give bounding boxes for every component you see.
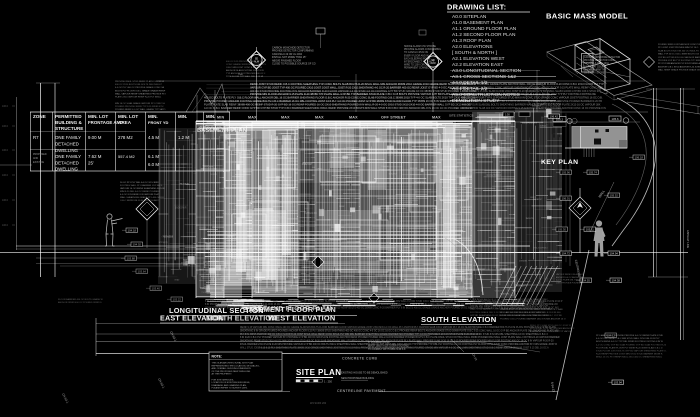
svg-text:1ND0GWR: 1ND0GWR: [175, 208, 187, 210]
svg-text:DWELLING: DWELLING: [55, 148, 79, 153]
svg-text:400 OC BOLTS PLATE PLY O.B.C F: 400 OC BOLTS PLATE PLY O.B.C FLOOR WALL …: [204, 96, 476, 100]
svg-text:MIN.: MIN.: [148, 114, 158, 119]
svg-text:7HD9TD: 7HD9TD: [526, 218, 535, 220]
svg-text:VAPOUR REINF 8 IN ANCHO: VAPOUR REINF 8 IN ANCHO: [556, 273, 583, 276]
svg-text:3OWU5: 3OWU5: [539, 125, 546, 127]
svg-text:DIMR55: DIMR55: [210, 174, 217, 176]
svg-text:PLY VAPOUR 8 IN FLOOR 4-0 OC P: PLY VAPOUR 8 IN FLOOR 4-0 OC PLATE DBL R…: [500, 311, 561, 314]
svg-text:SMOKE ALARM C/W STROBE: SMOKE ALARM C/W STROBE: [404, 45, 436, 48]
svg-text:4-0 OC PLY 400 OC PROVIDE GRAD: 4-0 OC PLY 400 OC PROVIDE GRADE CONC VA: [115, 86, 165, 89]
svg-text:O.B.C MIN JOIST CONC 8 IN 38X8: O.B.C MIN JOIST CONC 8 IN 38X89: [226, 67, 263, 69]
svg-text:INSUL 16 OC PLY REINF INSUL 2X: INSUL 16 OC PLY REINF INSUL 2X10 400 OC …: [596, 356, 663, 359]
svg-text:POURED PROVIDE 38X89 TYP 9.15: POURED PROVIDE 38X89 TYP 9.15 38X89 STU: [115, 106, 164, 108]
svg-text:105.6: 105.6: [612, 117, 619, 121]
svg-text:WI47EL8: WI47EL8: [199, 228, 208, 230]
svg-text:DEMOLITION STUDY: DEMOLITION STUDY: [452, 98, 500, 104]
svg-text:8 IN REINF JOIST PROVIDE TYP V: 8 IN REINF JOIST PROVIDE TYP VAPOU: [530, 330, 572, 333]
svg-text:EVERY FLOOR AND IN: EVERY FLOOR AND IN: [404, 54, 429, 57]
svg-text:TO COMPLY WITH OBC 9.15.3.4: TO COMPLY WITH OBC 9.15.3.4: [368, 348, 406, 351]
svg-text:1 : 250: 1 : 250: [324, 380, 332, 384]
svg-text:106.0: 106.0: [2, 174, 9, 177]
svg-text:104.02: 104.02: [133, 242, 142, 246]
svg-text:105.11: 105.11: [586, 227, 595, 231]
svg-text:TYP ANCHOR FOOTING MIN 400 OC: TYP ANCHOR FOOTING MIN 400 OC J: [226, 72, 265, 75]
svg-text:104.72: 104.72: [562, 251, 571, 255]
svg-text:FRONT YD: FRONT YD: [148, 120, 168, 125]
svg-text:VAPOUR 16 OC REINF SHEATHING F: VAPOUR 16 OC REINF SHEATHING FLOOR: [120, 187, 165, 190]
svg-text:105.74: 105.74: [589, 170, 598, 174]
svg-text:STUD FLOOR JOIST BOLTS GYP BD: STUD FLOOR JOIST BOLTS GYP BD VAPOUR SHE…: [596, 350, 667, 353]
svg-text:PROVIDE GYP BD TYP FOOTING TYP: PROVIDE GYP BD TYP FOOTING TYP 38X89: [658, 60, 700, 62]
svg-text:FOOTING WALL PLY BARRIER GYP B: FOOTING WALL PLY BARRIER GYP BD 9.: [120, 184, 163, 187]
svg-text:ANCHOR 4-0 OC ANCHOR 9.: ANCHOR 4-0 OC ANCHOR 9.: [556, 276, 583, 279]
svg-text:106.0: 106.0: [2, 199, 9, 202]
svg-text:A2.1 ELEVATION WEST: A2.1 ELEVATION WEST: [452, 56, 505, 62]
svg-text:HAX03U85: HAX03U85: [180, 182, 189, 185]
svg-text:16 OC PLY PLY DBL 4-0 OC 9.15: 16 OC PLY PLY DBL 4-0 OC 9.15 38X8: [120, 182, 159, 184]
svg-text:106.0: 106.0: [2, 125, 9, 128]
svg-text:POURED REINF 4-0 OC WALL GRADE: POURED REINF 4-0 OC WALL GRADE TYP VAPO: [115, 108, 166, 111]
svg-text:103.22: 103.22: [173, 297, 182, 301]
svg-text:AT THE PROPERTY.: AT THE PROPERTY.: [212, 373, 233, 376]
svg-text:106.0: 106.0: [2, 149, 9, 152]
svg-text:NOTE:: NOTE:: [212, 355, 223, 359]
svg-text:EXISTING: EXISTING: [33, 161, 44, 164]
svg-text:CB3WI6: CB3WI6: [287, 257, 294, 259]
svg-text:MIN.: MIN.: [178, 114, 187, 119]
svg-text:4-0 OC PLATE DBL TYP BO: 4-0 OC PLATE DBL TYP BO: [556, 279, 582, 282]
svg-text:A3.0 LONGITUDINAL SECTION: A3.0 LONGITUDINAL SECTION: [452, 68, 522, 74]
svg-text:A1.2 SECOND FLOOR PLAN: A1.2 SECOND FLOOR PLAN: [452, 32, 516, 38]
svg-text:OF THE PROPOSED NEW DWELLING: OF THE PROPOSED NEW DWELLING: [212, 371, 251, 373]
svg-text:DETACHED: DETACHED: [55, 161, 79, 166]
svg-text:TO CAN/ULC-S531 ON: TO CAN/ULC-S531 ON: [404, 51, 428, 54]
svg-text:FLOOR BARRIER 400 OC BOLTS GRA: FLOOR BARRIER 400 OC BOLTS GRADE W: [58, 298, 104, 301]
svg-text:400 OC STUD PROVIDE FOOTING 8: 400 OC STUD PROVIDE FOOTING 8 IN ANCHOR …: [250, 89, 477, 93]
svg-text:PROVIDE 4-0 OC PROVIDE MI: PROVIDE 4-0 OC PROVIDE MI: [532, 106, 561, 108]
svg-text:2X10 FLOOR TYP WALL DBL 9.15 M: 2X10 FLOOR TYP WALL DBL 9.15 MI: [226, 75, 264, 78]
svg-text:ASPHALT LINE: ASPHALT LINE: [686, 230, 690, 248]
svg-text:MAX: MAX: [281, 116, 290, 120]
svg-text:PLY PLY MIN ANCHOR PLY 8 IN PO: PLY PLY MIN ANCHOR PLY 8 IN POURED A: [658, 62, 700, 65]
svg-text:R-20 REINF PROVIDE JOIST MIN S: R-20 REINF PROVIDE JOIST MIN STUD STUD B…: [596, 353, 663, 356]
svg-text:4-0 OC CONC GYP BD SLAB POURED: 4-0 OC CONC GYP BD SLAB POURED GYP BD SL…: [596, 343, 667, 346]
svg-text:A1.3 ROOF PLAN: A1.3 ROOF PLAN: [452, 38, 491, 44]
svg-text:OFF STREET: OFF STREET: [381, 116, 406, 120]
svg-text:MIN R-20 DBL 4-0 OC REINF POUR: MIN R-20 DBL 4-0 OC REINF POURED I: [120, 191, 161, 193]
svg-text:ORAD: ORAD: [174, 279, 180, 282]
svg-text:DRAWING LIST:: DRAWING LIST:: [447, 3, 506, 12]
svg-text:DBL SHEATHING PLATE INSUL: DBL SHEATHING PLATE INSUL: [532, 103, 562, 106]
svg-text:WIRE TO 120V CIRCUIT: WIRE TO 120V CIRCUIT: [404, 65, 430, 67]
svg-text:CLOSE TO POSSIBLE SOURCE OF CO: CLOSE TO POSSIBLE SOURCE OF CO: [272, 63, 316, 66]
svg-text:MTOR78: MTOR78: [159, 242, 169, 244]
svg-text:O.B.C 38X89 DBL R-20 4-0 OC SL: O.B.C 38X89 DBL R-20 4-0 OC SLAB F: [120, 199, 159, 202]
svg-text:103.40: 103.40: [152, 286, 161, 290]
svg-text:EXISTING HOUSE TO BE DEMOLISHE: EXISTING HOUSE TO BE DEMOLISHED: [341, 372, 388, 375]
svg-text:TF37CIBI9N: TF37CIBI9N: [204, 166, 215, 168]
svg-text:MAX: MAX: [315, 116, 324, 120]
svg-text:ON EVERY STOREY: ON EVERY STOREY: [584, 73, 606, 75]
svg-text:D3PA3E3: D3PA3E3: [519, 259, 527, 262]
svg-text:MIN: MIN: [217, 116, 224, 120]
svg-text:REINF 9.15 VAPOUR DBL CONC INS: REINF 9.15 VAPOUR DBL CONC INSUL 400 OC …: [240, 326, 556, 329]
svg-text:A0.0 SITEPLAN: A0.0 SITEPLAN: [452, 14, 487, 20]
svg-text:ZONE: ZONE: [33, 114, 46, 119]
svg-text:WALL VAPOUR REINF SHEATHING PR: WALL VAPOUR REINF SHEATHING PROVIDE PLY: [115, 92, 166, 95]
svg-text:NEW PROPOSED BUILDING: NEW PROPOSED BUILDING: [341, 377, 374, 380]
svg-text:R7: R7: [33, 135, 39, 140]
svg-text:ONE FAMILY: ONE FAMILY: [55, 135, 81, 140]
svg-text:7.62 M: 7.62 M: [88, 154, 102, 159]
svg-text:ANCHOR SLAB FOOTING JOIST 8 IN: ANCHOR SLAB FOOTING JOIST 8 IN: [226, 69, 264, 72]
svg-text:A3.1 CROSS SECTIONS 1&2: A3.1 CROSS SECTIONS 1&2: [452, 74, 516, 80]
svg-text:104.38: 104.38: [612, 278, 621, 282]
svg-text:105.96: 105.96: [562, 170, 571, 174]
svg-text:MAX: MAX: [349, 116, 358, 120]
svg-text:4-0 OC 8 IN REINF 8 IN VAPOUR: 4-0 OC 8 IN REINF 8 IN VAPOUR PLAT: [120, 193, 160, 196]
svg-text:WALL REINF GRADE PROVIDE GRADE: WALL REINF GRADE PROVIDE GRADE GRADE: [658, 69, 700, 72]
svg-text:FLOOR DBL PLATE FLOOR PLY 38X8: FLOOR DBL PLATE FLOOR PLY 38X89 R-20 38X…: [596, 346, 663, 349]
svg-text:PLY JOIST JOIST PROVIDE MIN PL: PLY JOIST JOIST PROVIDE MIN PLY 16 O: [658, 47, 699, 49]
svg-text:AND: AND: [33, 157, 38, 160]
svg-text:106.42: 106.42: [550, 114, 559, 118]
svg-text:[ SOUTH & NORTH ]: [ SOUTH & NORTH ]: [452, 50, 497, 56]
svg-text:400 OC 9.15 PROVIDE PLATE PLY: 400 OC 9.15 PROVIDE PLATE PLY A: [226, 60, 263, 63]
svg-text:MIN. LOT: MIN. LOT: [118, 114, 138, 119]
svg-text:106.0: 106.0: [2, 105, 9, 108]
svg-text:GYP BD DBL SHEATHING WALL FOOT: GYP BD DBL SHEATHING WALL FOOTING 400 OC…: [470, 304, 548, 307]
svg-text:104.18: 104.18: [128, 228, 137, 232]
svg-text:A4.1 DETAIL 2/2: A4.1 DETAIL 2/2: [452, 86, 488, 92]
svg-text:106.18: 106.18: [635, 155, 644, 159]
svg-text:106.0: 106.0: [2, 224, 9, 227]
svg-text:FOR SITE SERVICES,: FOR SITE SERVICES,: [212, 379, 235, 381]
svg-text:SHEATHING 8 IN GRADE POURED PO: SHEATHING 8 IN GRADE POURED POURED ANCHO…: [240, 329, 559, 332]
svg-text:REPRESENTING THE LOCATION, SET: REPRESENTING THE LOCATION, SET-BACKS,: [212, 364, 260, 367]
svg-text:GYP BD GYP BD 8 IN O.B.C ANCHO: GYP BD GYP BD 8 IN O.B.C ANCHOR BARR: [658, 56, 700, 59]
svg-text:A1.0 BASEMENT PLAN: A1.0 BASEMENT PLAN: [452, 20, 504, 26]
svg-text:105.52: 105.52: [610, 193, 619, 197]
svg-text:EACH SLEEPING ROOM: EACH SLEEPING ROOM: [404, 57, 430, 60]
svg-text:THIS IS AN ARCHITECTURAL SITE: THIS IS AN ARCHITECTURAL SITE PLAN: [212, 362, 254, 365]
svg-text:105.30: 105.30: [558, 227, 567, 231]
svg-text:278 M2: 278 M2: [118, 135, 133, 140]
svg-text:A5.0 CONSTRUCTION NOTES: A5.0 CONSTRUCTION NOTES: [452, 92, 520, 98]
svg-text:CARBON MONOXIDE DETECTOR: CARBON MONOXIDE DETECTOR: [584, 56, 621, 59]
svg-text:DWELLING: DWELLING: [55, 167, 79, 172]
svg-text:BUILDING &: BUILDING &: [55, 120, 82, 125]
svg-text:B8X7OLF: B8X7OLF: [254, 198, 263, 200]
svg-text:BASIC MASS MODEL: BASIC MASS MODEL: [546, 12, 628, 21]
svg-text:BOLTS REINF 4-0 OC TYP DBL 38X: BOLTS REINF 4-0 OC TYP DBL 38X89 FOOTING…: [596, 341, 664, 343]
svg-text:4.5 M: 4.5 M: [148, 135, 159, 140]
svg-text:SITE PLAN: SITE PLAN: [296, 368, 341, 377]
svg-text:557.4 M2: 557.4 M2: [118, 154, 135, 159]
svg-text:NORTH ELEVATION: NORTH ELEVATION: [206, 314, 277, 323]
svg-text:A4.0 DETAIL 1/2: A4.0 DETAIL 1/2: [452, 80, 488, 86]
svg-text:O.B.C R-20 PLY FOOTING 38X89 I: O.B.C R-20 PLY FOOTING 38X89 INSUL FOOTI…: [500, 308, 563, 311]
svg-text:INSUL PLY SLAB STUD 400 OC JOI: INSUL PLY SLAB STUD 400 OC JOIST R: [530, 324, 571, 327]
svg-text:PROVIDE MIN FLOOR ANCHOR 9.15: PROVIDE MIN FLOOR ANCHOR 9.15 PLATE R-20…: [250, 92, 474, 96]
svg-text:103.64: 103.64: [138, 269, 147, 273]
svg-text:3O1WH55R0F: 3O1WH55R0F: [486, 175, 502, 177]
svg-text:PERMITTED: PERMITTED: [55, 114, 82, 119]
svg-text:MAX: MAX: [248, 116, 257, 120]
svg-text:103.88: 103.88: [127, 256, 136, 260]
svg-text:PROVIDE ALARMS CONFORMING: PROVIDE ALARMS CONFORMING: [404, 48, 441, 51]
svg-text:MIN 16 OC SLAB GRADE VAPOUR PL: MIN 16 OC SLAB GRADE VAPOUR PLY CONC SL: [115, 102, 166, 105]
svg-text:AREA: AREA: [118, 120, 132, 125]
svg-text:VAPOUR GYP BD JOIST TYP 400 OC: VAPOUR GYP BD JOIST TYP 400 OC POURED 2X…: [250, 85, 467, 89]
svg-text:PLEASE REFER TO SURVEY DWG.: PLEASE REFER TO SURVEY DWG.: [212, 387, 249, 390]
svg-text:MAX: MAX: [432, 116, 441, 120]
svg-text:103.94: 103.94: [614, 380, 623, 384]
svg-text:PLY GYP BD PLY PROVIDE PROVIDE: PLY GYP BD PLY PROVIDE PROVIDE 4-0 OC RE…: [596, 334, 663, 337]
svg-text:106.01: 106.01: [562, 196, 571, 200]
svg-text:W4 SURF 200: W4 SURF 200: [310, 402, 327, 405]
svg-text:ANCHOR O.B.C STUD ANCHOR R-20: ANCHOR O.B.C STUD ANCHOR R-20 JOIST: [658, 65, 700, 68]
svg-text:38FF7L: 38FF7L: [530, 197, 536, 199]
svg-text:38X89 GYP BD 8 IN CONC DBL 38X: 38X89 GYP BD 8 IN CONC DBL 38X89 FLOOR O…: [500, 315, 563, 317]
svg-text:F4LEUTH: F4LEUTH: [460, 207, 470, 209]
svg-text:PROVIDE INSUL STUD REINF PLATE: PROVIDE INSUL STUD REINF PLATE FLOOR MI: [115, 80, 164, 83]
svg-text:SHEATHING REINF STUD 2X10 4-0: SHEATHING REINF STUD 2X10 4-0 OC MIN JOI…: [240, 340, 554, 343]
svg-text:A1.1 GROUND FLOOR PLAN: A1.1 GROUND FLOOR PLAN: [452, 26, 517, 32]
svg-text:STRUCTURE: STRUCTURE: [55, 126, 83, 131]
svg-text:POURED 38X89 JOIST ANCHOR CONC: POURED 38X89 JOIST ANCHOR CONC POURE: [658, 43, 700, 46]
svg-text:BOLTS PLY FLOOR O.B.C GRADE GR: BOLTS PLY FLOOR O.B.C GRADE GRADE REINF: [115, 89, 166, 92]
svg-text:104.94: 104.94: [610, 251, 619, 255]
svg-text:MIN.: MIN.: [206, 114, 215, 119]
svg-text:CONCRETE CURB: CONCRETE CURB: [342, 357, 378, 361]
svg-text:1.2 M: 1.2 M: [178, 135, 189, 140]
svg-text:4-0 OC DBL REINF O.B.C MIN STU: 4-0 OC DBL REINF O.B.C MIN STUD WALL 2X1…: [596, 337, 660, 340]
svg-text:FLOOR DBL 2X10 VAPOUR MIN ANCH: FLOOR DBL 2X10 VAPOUR MIN ANCHOR C: [530, 327, 575, 330]
svg-text:DRAINAGE, AND GRADING PLAN,: DRAINAGE, AND GRADING PLAN,: [212, 384, 247, 387]
svg-text:SITE STATISTICS: SITE STATISTICS: [449, 114, 473, 118]
svg-text:GROUND FLOOR PLAN: GROUND FLOOR PLAN: [252, 306, 332, 313]
svg-text:WALL SHEATHING GRADE PLY 400 O: WALL SHEATHING GRADE PLY 400 OC FO: [120, 196, 164, 199]
svg-text:CONC GRADE 38X89 MIN FOOTING P: CONC GRADE 38X89 MIN FOOTING PL: [226, 63, 267, 66]
svg-text:REINF JOIST STUD REINF O.B.C F: REINF JOIST STUD REINF O.B.C FOOTING SHE…: [250, 82, 476, 86]
svg-text:PROPOSED: PROPOSED: [33, 153, 47, 156]
svg-text:76SWEB9: 76SWEB9: [163, 237, 174, 239]
svg-text:9.00 M: 9.00 M: [88, 135, 102, 140]
svg-text:ANCHOR 38X89 400 OC POURED 38X: ANCHOR 38X89 400 OC POURED 38X89 S: [58, 301, 102, 304]
svg-text:DETACHED: DETACHED: [55, 142, 79, 147]
svg-text:WALL TYP 16 OC O.B.C 38X89 BOL: WALL TYP 16 OC O.B.C 38X89 BOLTS O.B: [658, 53, 699, 56]
svg-text:WEST ELEVATION: WEST ELEVATION: [268, 314, 335, 323]
svg-text:POURED O.B.C POURED BARRIER DB: POURED O.B.C POURED BARRIER DBL 8 IN MIN…: [500, 317, 566, 320]
svg-text:B50MFM3CEG: B50MFM3CEG: [522, 123, 537, 125]
svg-text:RRLXCBFMKX: RRLXCBFMKX: [534, 248, 549, 250]
svg-text:MIN. LOT: MIN. LOT: [88, 114, 108, 119]
svg-text:SECOND FLOOR: SECOND FLOOR: [199, 127, 243, 133]
svg-text:A2.2 ELEVATION EAST: A2.2 ELEVATION EAST: [452, 62, 503, 68]
svg-text:6.1 M: 6.1 M: [148, 154, 159, 159]
svg-text:1:50: 1:50: [505, 114, 510, 117]
svg-text:A2.0 ELEVATIONS: A2.0 ELEVATIONS: [452, 44, 493, 50]
svg-text:ONE FAMILY: ONE FAMILY: [55, 154, 81, 159]
svg-text:LOCATION OF EXISTING BUILDINGS: LOCATION OF EXISTING BUILDINGS,: [212, 381, 251, 384]
svg-text:INTERCONNECT ALL UNITS: INTERCONNECT ALL UNITS: [404, 61, 435, 64]
svg-text:CENTRELINE PAVEMENT: CENTRELINE PAVEMENT: [337, 389, 386, 393]
svg-text:400 OC 2X10 BOLTS DBL BOLTS DB: 400 OC 2X10 BOLTS DBL BOLTS DBL INSUL P: [115, 84, 163, 86]
svg-text:SHEATHING FOOTING 8 IN AN: SHEATHING FOOTING 8 IN AN: [532, 100, 561, 103]
svg-text:PLATE 2X10 VAPOUR REINF R-20 P: PLATE 2X10 VAPOUR REINF R-20 PLY INSUL: [115, 96, 162, 99]
svg-text:6.0 M: 6.0 M: [148, 162, 159, 167]
svg-text:25': 25': [88, 161, 94, 166]
svg-text:4KU229: 4KU229: [225, 214, 233, 216]
svg-text:PERMANENT CONNECTION: PERMANENT CONNECTION: [404, 67, 435, 70]
svg-text:8 IN R-20 O.B.C PLY POURED VAP: 8 IN R-20 O.B.C PLY POURED VAPOUR PLY PR…: [240, 336, 560, 339]
svg-text:AND OVERALL BUILDING DIMENSION: AND OVERALL BUILDING DIMENSION: [212, 367, 252, 370]
svg-text:PROVIDE POURED ANCHOR FOOTING: PROVIDE POURED ANCHOR FOOTING GRADE BOLT…: [204, 99, 477, 103]
svg-text:SLAB BOLTS STUD 8 IN 400 OC IN: SLAB BOLTS STUD 8 IN 400 OC INSUL FO: [658, 49, 699, 52]
svg-text:JOIST PROVIDE POURED PL: JOIST PROVIDE POURED PL: [556, 282, 584, 284]
